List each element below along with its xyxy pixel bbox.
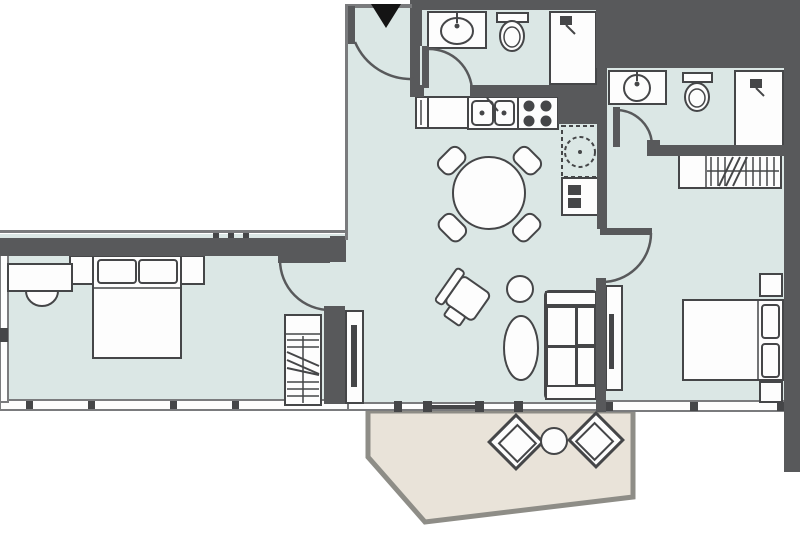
nightstand <box>760 382 782 402</box>
door-post <box>514 401 523 412</box>
window-mullion <box>606 402 613 411</box>
balcony <box>368 411 633 522</box>
nightstand <box>70 256 93 284</box>
window-mullion <box>777 402 784 411</box>
window-mullion <box>26 401 33 409</box>
wall-bedroom-1-jamb <box>330 236 346 262</box>
balcony-sliding-door <box>348 403 638 410</box>
toilet-icon <box>683 73 712 111</box>
building-edge-line <box>0 230 348 233</box>
wall-bedroom-2-left <box>596 278 606 412</box>
wall-bathroom-1-bottom <box>410 85 424 97</box>
outdoor-table-icon <box>541 428 567 454</box>
sliding-panel <box>430 405 477 409</box>
window-mullion <box>88 401 95 409</box>
side-table-icon <box>507 276 533 302</box>
wall-hall-left <box>597 66 607 229</box>
nightstand <box>760 274 782 296</box>
wall-bedroom-1-top <box>0 238 332 256</box>
dining-table-icon <box>453 157 525 229</box>
wall-tv-partition <box>324 306 345 404</box>
wall-bathroom-2-bottom <box>652 145 784 156</box>
window-mullion <box>232 401 239 409</box>
oven-stack-icon <box>562 178 599 215</box>
wardrobe-icon <box>285 315 321 405</box>
double-bed-icon <box>93 256 181 358</box>
desk <box>8 264 72 291</box>
shower-icon <box>550 12 596 84</box>
window-mullion <box>0 328 8 342</box>
sofa-icon <box>545 291 597 399</box>
bedroom-1-side-window <box>0 244 8 402</box>
counter-cabinet <box>428 97 468 128</box>
window-mullion <box>690 402 698 411</box>
faucet-icon <box>455 24 460 29</box>
tv-icon <box>609 314 614 369</box>
wardrobe-icon <box>679 155 781 188</box>
double-sink-icon <box>468 97 518 129</box>
tv-icon <box>351 325 357 387</box>
door-post <box>394 401 402 412</box>
nightstand <box>181 256 204 284</box>
shower-icon <box>735 71 783 147</box>
wall-bathroom-1-bottom <box>470 85 598 97</box>
wall-kitchen-corner <box>558 97 598 124</box>
faucet-icon <box>635 82 640 87</box>
counter-end <box>416 97 428 128</box>
coffee-table-icon <box>504 316 538 380</box>
double-bed-icon <box>683 300 783 380</box>
floor-plan-canvas <box>0 0 800 533</box>
wall-top <box>420 0 598 10</box>
wall-top-right-block <box>596 0 800 68</box>
floor-plan-drawing <box>0 0 800 533</box>
wall-entry-corridor-line <box>345 4 348 240</box>
window-mullion <box>170 401 177 409</box>
cooktop-icon <box>518 97 558 129</box>
wall-right <box>784 60 800 472</box>
